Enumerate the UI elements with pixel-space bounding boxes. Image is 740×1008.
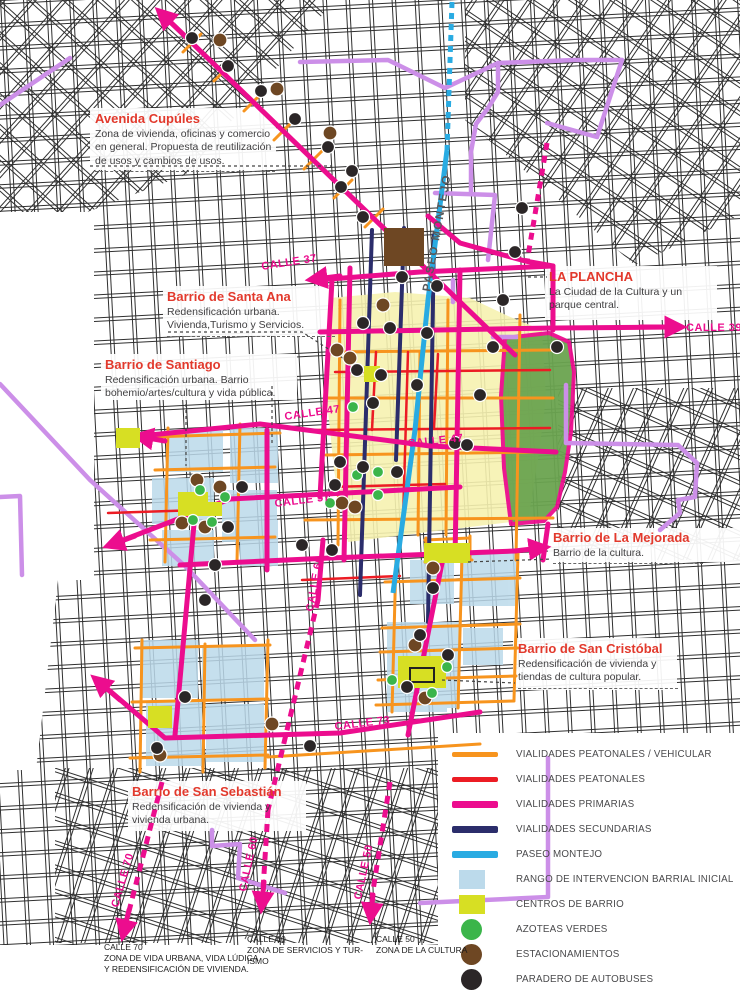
legend-swatch-vialidades-peatonales [452, 777, 498, 782]
bus-stop-marker [329, 479, 342, 492]
legend-label: VIALIDADES PEATONALES / VEHICULAR [516, 749, 712, 760]
legend-swatch-vialidades-peatonales-vehicular [452, 752, 498, 757]
legend-item: VIALIDADES PRIMARIAS [452, 792, 740, 816]
bus-stop-marker [334, 456, 347, 469]
legend-swatch-rango-de-intervencion-barrial-inicial [459, 870, 485, 889]
bus-stop-marker [351, 364, 364, 377]
parking-marker [213, 33, 227, 47]
footnote-title: CALLE 70 [104, 942, 264, 953]
bus-stop-marker [222, 521, 235, 534]
annotation-body: La Ciudad de la Cultura y un parque cent… [549, 286, 714, 313]
bus-stop-marker [357, 317, 370, 330]
bus-stop-marker [209, 559, 222, 572]
bus-stop-marker [509, 246, 522, 259]
bus-stop-marker [367, 397, 380, 410]
green-roof-marker [427, 688, 438, 699]
bus-stop-marker [474, 389, 487, 402]
legend-item: RANGO DE INTERVENCION BARRIAL INICIAL [452, 867, 740, 891]
annotation-title: LA PLANCHA [549, 270, 714, 285]
bus-stop-marker [289, 113, 302, 126]
parking-marker [270, 82, 284, 96]
parking-marker [265, 717, 279, 731]
footnote-calle-50: CALLE 50 ZONA DE LA CULTURA [376, 934, 498, 956]
green-roof-marker [220, 492, 231, 503]
legend-swatch-vialidades-secundarias [452, 826, 498, 833]
bus-stop-marker [411, 379, 424, 392]
bus-stop-marker [346, 165, 359, 178]
legend-item: PARADERO DE AUTOBUSES [452, 967, 740, 991]
bus-stop-marker [401, 681, 414, 694]
bus-stop-marker [151, 742, 164, 755]
bus-stop-marker [384, 322, 397, 335]
parking-marker [343, 351, 357, 365]
legend-label: PARADERO DE AUTOBUSES [516, 974, 653, 985]
bus-stop-marker [179, 691, 192, 704]
footnote-body: ZONA DE VIDA URBANA, VIDA LÚDICA Y REDEN… [104, 953, 264, 975]
legend-label: ESTACIONAMIENTOS [516, 949, 620, 960]
annotation-san-cristobal: Barrio de San Cristóbal Redensificación … [518, 642, 678, 689]
annotation-title: Barrio de San Sebastián [132, 785, 304, 800]
annotation-body: Zona de vivienda, oficinas y comercio en… [95, 128, 275, 172]
parking-marker [175, 516, 189, 530]
bus-stop-marker [326, 544, 339, 557]
annotation-santiago: Barrio de Santiago Redensificación urban… [105, 358, 297, 401]
bus-stop-marker [391, 466, 404, 479]
legend-label: AZOTEAS VERDES [516, 924, 608, 935]
bus-stop-marker [296, 539, 309, 552]
footnote-calle-60: CALLE 60 ZONA DE SERVICIOS Y TUR-ISMO [247, 934, 365, 967]
green-roof-marker [373, 467, 384, 478]
bus-stop-marker [236, 481, 249, 494]
bus-stop-marker [375, 369, 388, 382]
annotation-title: Avenida Cupúles [95, 112, 275, 127]
annotation-title: Barrio de La Mejorada [553, 531, 739, 546]
annotation-body: Barrio de la cultura. [553, 547, 703, 564]
bus-stop-marker [357, 211, 370, 224]
green-roof-marker [373, 490, 384, 501]
footnote-body: ZONA DE SERVICIOS Y TUR-ISMO [247, 945, 365, 967]
green-roof-marker [188, 515, 199, 526]
parking-marker [348, 500, 362, 514]
parking-structure [384, 228, 424, 266]
parking-marker [426, 561, 440, 575]
annotation-la-mejorada: Barrio de La Mejorada Barrio de la cultu… [553, 531, 739, 564]
legend-item: PASEO MONTEJO [452, 842, 740, 866]
bus-stop-marker [551, 341, 564, 354]
annotation-title: Barrio de Santiago [105, 358, 297, 373]
bus-stop-marker [442, 649, 455, 662]
legend-label: RANGO DE INTERVENCION BARRIAL INICIAL [516, 874, 734, 885]
parking-marker [330, 343, 344, 357]
legend-item: VIALIDADES PEATONALES / VEHICULAR [452, 742, 740, 766]
green-roof-marker [442, 662, 453, 673]
legend-label: PASEO MONTEJO [516, 849, 602, 860]
green-roof-marker [195, 485, 206, 496]
annotation-body: Redensificación urbana. Barrio bohemio/a… [105, 374, 297, 401]
annotation-title: Barrio de San Cristóbal [518, 642, 678, 657]
legend-item: CENTROS DE BARRIO [452, 892, 740, 916]
urban-plan-map: PASEO MONTEJO CALLE 37 CALLE 39 CALLE 47… [0, 0, 740, 1008]
bus-stop-marker [186, 32, 199, 45]
parking-marker [376, 298, 390, 312]
legend-swatch-vialidades-primarias [452, 801, 498, 808]
legend-swatch-paradero-de-autobuses [461, 969, 482, 990]
legend-label: CENTROS DE BARRIO [516, 899, 624, 910]
annotation-title: Barrio de Santa Ana [167, 290, 335, 305]
parking-marker [335, 496, 349, 510]
annotation-body: Redensificación de vivienda y vivienda u… [132, 801, 304, 828]
annotation-santa-ana: Barrio de Santa Ana Redensificación urba… [167, 290, 335, 337]
bus-stop-marker [304, 740, 317, 753]
annotation-body: Redensificación urbana. Vivienda,Turismo… [167, 306, 335, 337]
bus-stop-marker [516, 202, 529, 215]
annotation-san-sebastian: Barrio de San Sebastián Redensificación … [132, 785, 304, 828]
bus-stop-marker [497, 294, 510, 307]
bus-stop-marker [335, 181, 348, 194]
bus-stop-marker [255, 85, 268, 98]
legend-label: VIALIDADES PEATONALES [516, 774, 645, 785]
annotation-body: Redensificación de vivienda y tiendas de… [518, 658, 678, 689]
label-calle-39: CALLE 39 [686, 322, 740, 334]
bus-stop-marker [421, 327, 434, 340]
bus-stop-marker [414, 629, 427, 642]
parking-marker [323, 126, 337, 140]
legend-item: VIALIDADES SECUNDARIAS [452, 817, 740, 841]
annotation-avenida-cupules: Avenida Cupúles Zona de vivienda, oficin… [95, 112, 275, 172]
legend-label: VIALIDADES SECUNDARIAS [516, 824, 652, 835]
bus-stop-marker [222, 60, 235, 73]
footnote-calle-70: CALLE 70 ZONA DE VIDA URBANA, VIDA LÚDIC… [104, 942, 264, 975]
bus-stop-marker [396, 271, 409, 284]
legend-label: VIALIDADES PRIMARIAS [516, 799, 634, 810]
bus-stop-marker [322, 141, 335, 154]
footnote-title: CALLE 50 [376, 934, 498, 945]
green-roof-marker [348, 402, 359, 413]
green-roof-marker [207, 517, 218, 528]
legend-item: VIALIDADES PEATONALES [452, 767, 740, 791]
legend-swatch-centros-de-barrio [459, 895, 485, 914]
green-roof-marker [387, 675, 398, 686]
annotation-la-plancha: LA PLANCHA La Ciudad de la Cultura y un … [549, 270, 714, 313]
legend-swatch-paseo-montejo [452, 851, 498, 858]
bus-stop-marker [199, 594, 212, 607]
bus-stop-marker [487, 341, 500, 354]
bus-stop-marker [357, 461, 370, 474]
footnote-body: ZONA DE LA CULTURA [376, 945, 498, 956]
bus-stop-marker [427, 582, 440, 595]
footnote-title: CALLE 60 [247, 934, 365, 945]
